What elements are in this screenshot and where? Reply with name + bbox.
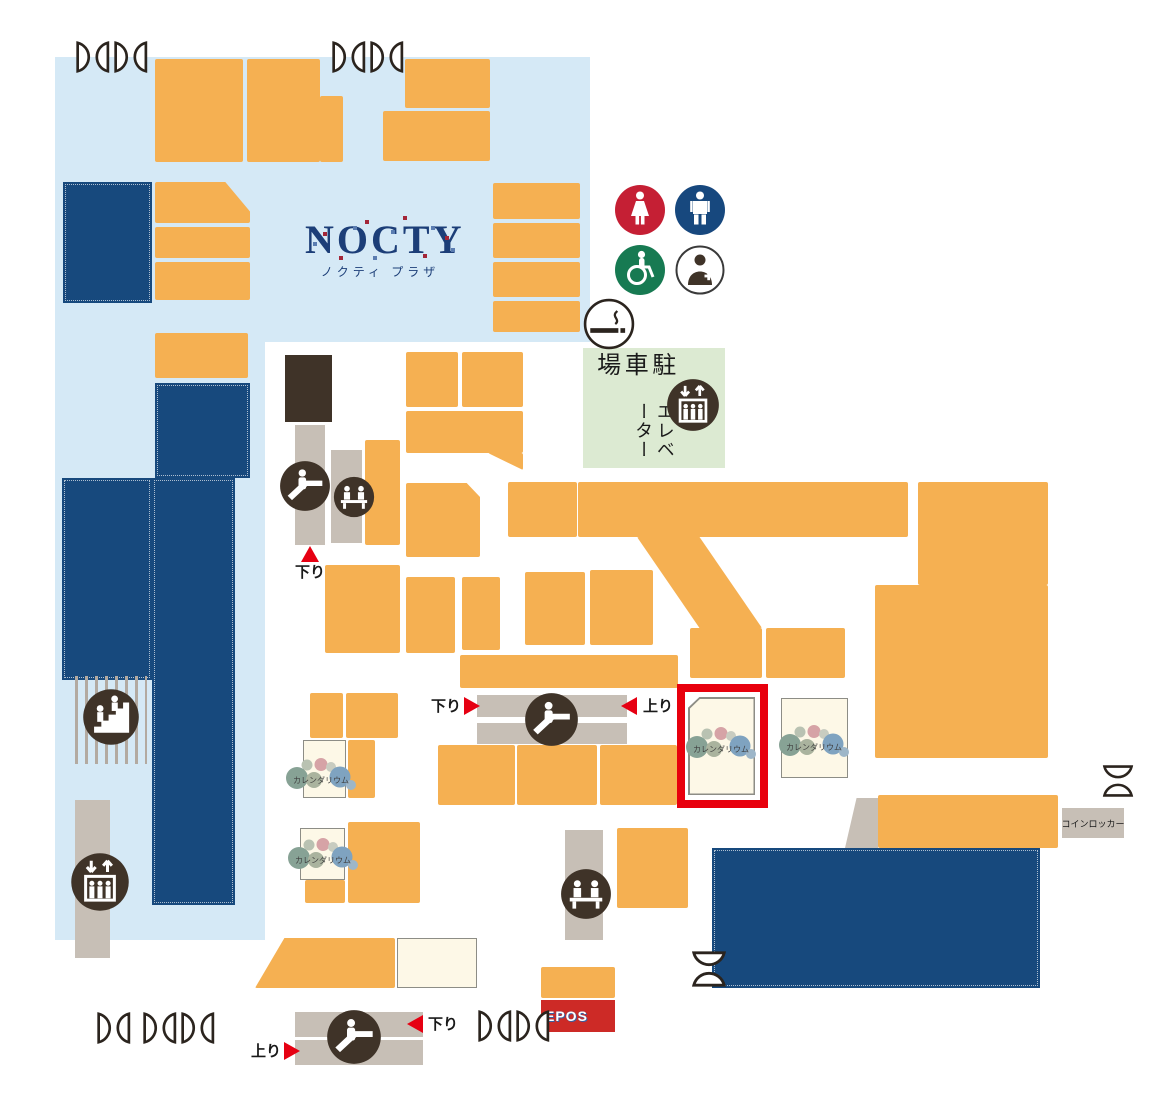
shop-block [590,570,653,645]
anchor-store-block [152,478,235,905]
direction-arrow-left [621,697,637,715]
shop-block [918,482,1048,585]
epos-card-counter: EPOS [541,1000,615,1032]
escalator-icon [279,460,331,512]
shop-block [406,411,523,453]
shop-block [541,967,615,998]
shop-block [320,96,343,162]
shop-block [346,693,398,738]
shop-block [438,745,515,805]
direction-arrow-up [301,546,319,562]
shop-block [493,223,580,258]
entrance-door-icon [331,41,404,73]
entrance-door-icon [96,1012,132,1044]
nocty-logo: NOCTY ノクティ プラザ [305,220,455,280]
shop-block [493,183,580,219]
men-restroom-icon [675,185,725,235]
entrance-door-icon [75,41,148,73]
shop-block [875,585,1048,758]
shop-block [383,111,490,161]
down-label: 下り [428,1017,458,1032]
service-block [285,355,332,422]
entrance-door-icon [142,1012,215,1044]
nocty-title: NOCTY [305,220,455,260]
women-restroom-icon [615,185,665,235]
elevator-label: エレベーター [592,402,675,466]
shop-logo: カレンダリウム [287,833,359,877]
shop-block [406,352,458,407]
escalator-icon [326,1009,382,1065]
parking-label: 駐車場 [592,352,675,400]
shop-block [406,577,455,653]
shop-block [690,628,762,678]
shop-logo: カレンダリウム [285,753,357,797]
wheelchair-icon [615,245,665,295]
facility-piece [845,798,878,848]
nocty-subtitle: ノクティ プラザ [305,263,455,280]
shop-block [766,628,845,678]
first-aid-icon [675,245,725,295]
entrance-door-icon [477,1010,550,1042]
up-label: 上り [643,699,673,714]
shop-block [508,482,577,537]
shop-block [462,577,500,650]
entrance-door-icon [1101,764,1135,798]
rest-bench-icon [560,868,612,920]
epos-label: EPOS [545,1008,588,1024]
shop-block [578,482,908,537]
up-label: 上り [251,1044,281,1059]
shop-block [155,227,250,258]
shop-block [310,693,343,738]
shop-block [405,59,490,108]
shop-block [493,301,580,332]
direction-arrow-right [284,1042,300,1060]
down-label: 下り [295,565,325,580]
coin-locker-text: コインロッカー [1062,817,1125,830]
direction-arrow-left [407,1015,423,1033]
shop-block [637,537,762,628]
shop-block [525,572,585,645]
shop-block [406,483,480,557]
shop-block [155,333,248,378]
shop-block [155,262,250,300]
shop-block [878,795,1058,848]
shop-block [517,745,597,805]
logo-dots-blue [305,220,309,224]
down-label: 下り [431,699,461,714]
smoking-area-icon [583,298,635,350]
direction-arrow-right [464,697,480,715]
coin-locker-label: コインロッカー [1062,808,1124,838]
shop-block [462,352,523,407]
shop-block [325,565,400,653]
shop-block [488,453,523,470]
vacant-lot [397,938,477,988]
elevator-icon [666,378,720,432]
shop-block [460,655,678,688]
shop-block [600,745,677,805]
shop-logo-text: カレンダリウム [293,775,349,785]
shop-block [255,938,395,988]
anchor-store-block [62,478,152,680]
entrance-door-icon [690,950,728,988]
stairs-icon [82,688,140,746]
shop-block [155,59,243,162]
anchor-store-block [63,182,152,303]
shop-logo: カレンダリウム [778,720,850,764]
floor-map: 駐車場 エレベーター NOCTY ノクティ プラザ 下り 下り [0,0,1154,1104]
shop-block [247,59,320,162]
escalator-icon [524,692,579,747]
shop-logo-text: カレンダリウム [786,742,842,752]
shop-logo-text: カレンダリウム [295,855,351,865]
parking-elevator-label: 駐車場 エレベーター [592,352,675,466]
shop-block [305,880,345,903]
anchor-store-block [155,383,250,478]
highlighted-store-frame [677,684,768,808]
shop-block [617,828,688,908]
shop-block [493,262,580,297]
anchor-store-block [712,848,1040,988]
rest-bench-icon [333,476,375,518]
elevator-icon [70,852,130,912]
